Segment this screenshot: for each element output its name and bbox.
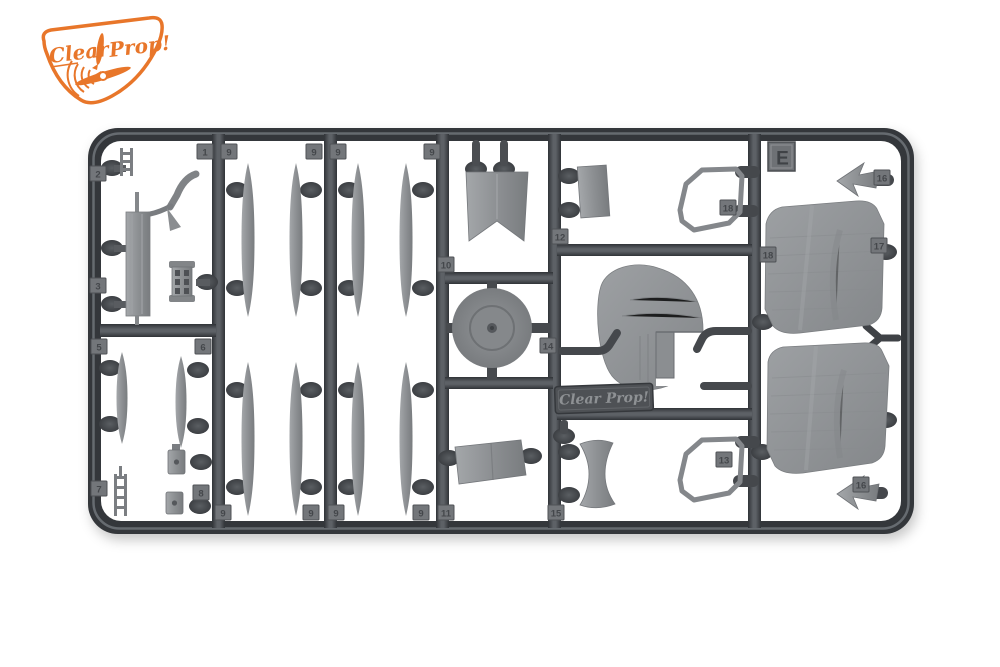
sprue-letter: E (776, 149, 789, 170)
nameplate-text: Clear Prop! (559, 389, 649, 408)
part-number-tab: 6 (195, 339, 211, 354)
svg-text:5: 5 (96, 343, 102, 354)
step-rail-part (126, 192, 150, 325)
radiator-part (169, 261, 195, 302)
svg-text:14: 14 (543, 342, 554, 353)
panel-part (577, 165, 609, 218)
part-number-tab: 8 (193, 485, 209, 500)
svg-text:16: 16 (877, 174, 888, 185)
part-number-tab: 9 (306, 144, 322, 159)
part-number-tab: 3 (90, 278, 106, 293)
svg-text:10: 10 (441, 261, 452, 272)
part-number-tab: 15 (548, 505, 564, 520)
svg-text:6: 6 (200, 343, 205, 354)
svg-text:9: 9 (333, 509, 338, 520)
svg-text:18: 18 (723, 204, 734, 215)
runner-horizontal (445, 377, 553, 389)
part-number-tab: 16 (853, 477, 869, 492)
svg-text:9: 9 (429, 148, 434, 159)
part-number-tab: 9 (303, 505, 319, 520)
part-number-tab: 7 (91, 481, 107, 496)
part-number-tab: 9 (221, 144, 237, 159)
part-number-tab: 5 (91, 339, 107, 354)
svg-text:9: 9 (226, 148, 231, 159)
svg-text:7: 7 (96, 485, 101, 496)
part-number-tab: 9 (413, 505, 429, 520)
wing-panel-upper (765, 201, 884, 333)
svg-text:15: 15 (551, 509, 562, 520)
plate-part (166, 492, 183, 514)
wing-panel-lower (767, 343, 889, 473)
part-number-tab: 9 (328, 505, 344, 520)
nameplate: Clear Prop! (555, 383, 654, 413)
svg-text:12: 12 (555, 233, 566, 244)
part-number-tab: 16 (874, 170, 890, 185)
part-number-tab: 14 (540, 338, 556, 353)
svg-text:13: 13 (719, 456, 730, 467)
runner-horizontal (445, 272, 553, 284)
part-number-tab: 11 (438, 505, 454, 520)
part-number-tab: 9 (424, 144, 440, 159)
runner-horizontal (100, 324, 216, 337)
svg-text:1: 1 (202, 148, 208, 159)
part-number-tab: 2 (90, 166, 106, 181)
sprue-e: Clear Prop! (0, 0, 1000, 667)
part-number-tab: 9 (330, 144, 346, 159)
part-number-tab: 17 (871, 238, 887, 253)
part-number-tab: 1 (197, 144, 213, 159)
part-number-tab: 9 (215, 505, 231, 520)
svg-text:9: 9 (335, 148, 340, 159)
sprue-letter-tab: E (768, 142, 795, 171)
runner-vertical (324, 134, 337, 528)
svg-text:8: 8 (198, 489, 203, 500)
svg-text:9: 9 (220, 509, 225, 520)
svg-text:9: 9 (308, 509, 313, 520)
svg-text:9: 9 (311, 148, 316, 159)
part-number-tab: 13 (716, 452, 732, 467)
svg-text:9: 9 (418, 509, 423, 520)
svg-text:2: 2 (95, 170, 100, 181)
svg-text:18: 18 (763, 251, 774, 262)
svg-text:17: 17 (874, 242, 885, 253)
photo-canvas: Clear Prop! (0, 0, 1000, 667)
runner-horizontal (557, 244, 752, 256)
part-number-tab: 12 (552, 229, 568, 244)
svg-text:3: 3 (95, 282, 100, 293)
svg-text:11: 11 (441, 509, 452, 520)
svg-text:16: 16 (856, 481, 867, 492)
part-number-tab: 18 (760, 247, 776, 262)
part-number-tab: 18 (720, 200, 736, 215)
part-number-tab: 10 (438, 257, 454, 272)
